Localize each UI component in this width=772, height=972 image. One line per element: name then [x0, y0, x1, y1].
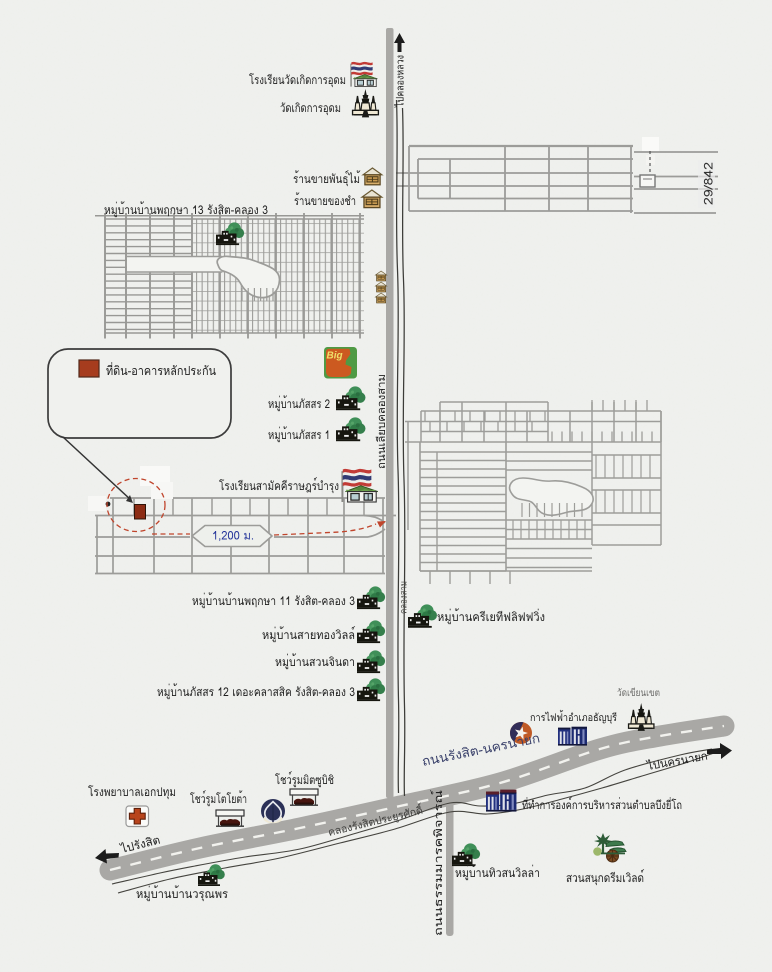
svg-text:Big: Big — [327, 351, 343, 362]
